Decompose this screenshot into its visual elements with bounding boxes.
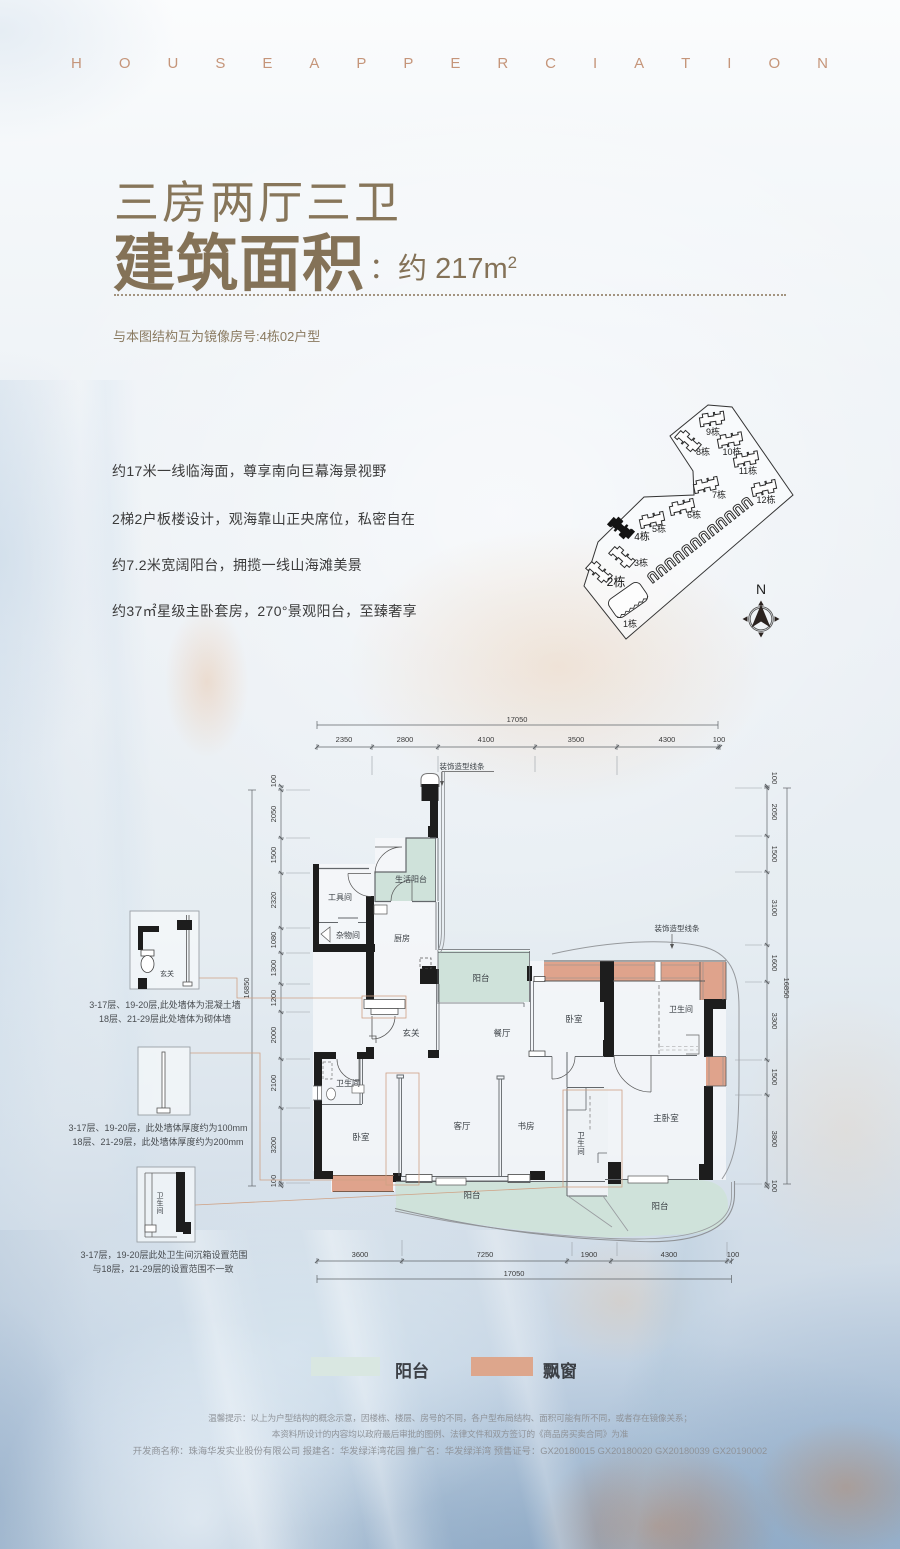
svg-text:2320: 2320 [269,892,278,909]
svg-text:3-17层、19-20层，此处墙体厚度约为100mm: 3-17层、19-20层，此处墙体厚度约为100mm [68,1122,247,1133]
svg-text:100: 100 [269,775,278,788]
svg-text:卫生间: 卫生间 [669,1004,693,1014]
svg-text:1500: 1500 [770,1069,779,1086]
svg-text:杂物间: 杂物间 [336,930,360,940]
svg-text:1600: 1600 [770,955,779,972]
svg-text:与18层，21-29层的设置范围不一致: 与18层，21-29层的设置范围不一致 [92,1263,233,1274]
svg-text:N: N [756,581,766,597]
svg-text:3200: 3200 [269,1137,278,1154]
svg-text:100: 100 [770,1180,779,1193]
svg-text:3-17层，19-20层此处卫生间沉箱设置范围: 3-17层，19-20层此处卫生间沉箱设置范围 [80,1249,247,1260]
svg-text:5栋: 5栋 [652,523,666,534]
svg-text:阳台: 阳台 [463,1190,480,1200]
svg-text:17050: 17050 [504,1269,525,1278]
svg-text:1900: 1900 [581,1250,598,1259]
svg-text:17050: 17050 [507,715,528,724]
svg-text:3300: 3300 [770,1013,779,1030]
svg-text:客厅: 客厅 [453,1121,471,1131]
svg-text:1栋: 1栋 [623,618,637,629]
svg-text:2050: 2050 [770,804,779,821]
svg-text:4300: 4300 [659,735,676,744]
svg-text:3栋: 3栋 [634,557,648,568]
svg-text:100: 100 [713,735,726,744]
svg-text:阳台: 阳台 [651,1201,668,1211]
svg-text:玄关: 玄关 [160,969,174,978]
svg-text:1500: 1500 [770,846,779,863]
svg-text:餐厅: 餐厅 [493,1028,511,1038]
svg-text:9栋: 9栋 [706,426,720,437]
svg-text:2000: 2000 [269,1027,278,1044]
svg-text:8栋: 8栋 [696,446,710,457]
svg-text:4栋: 4栋 [634,530,650,543]
svg-text:1500: 1500 [269,847,278,864]
svg-text:卧室: 卧室 [352,1132,370,1142]
svg-text:18层、21-29层此处墙体为砌体墙: 18层、21-29层此处墙体为砌体墙 [99,1013,231,1024]
svg-text:书房: 书房 [517,1121,534,1131]
svg-text:16850: 16850 [242,978,251,999]
svg-text:3800: 3800 [770,1131,779,1148]
svg-text:4300: 4300 [661,1250,678,1259]
svg-text:卧室: 卧室 [565,1014,583,1024]
svg-text:2350: 2350 [336,735,353,744]
svg-text:卫生间: 卫生间 [336,1078,360,1088]
svg-text:卫生间: 卫生间 [157,1192,164,1215]
svg-text:生活阳台: 生活阳台 [395,874,427,884]
svg-text:3500: 3500 [568,735,585,744]
svg-text:100: 100 [770,772,779,785]
svg-text:阳台: 阳台 [472,973,489,983]
svg-text:3600: 3600 [352,1250,369,1259]
svg-text:12栋: 12栋 [756,494,775,505]
svg-text:工具间: 工具间 [328,893,352,902]
svg-text:1300: 1300 [269,960,278,977]
svg-text:玄关: 玄关 [402,1028,420,1038]
svg-text:16850: 16850 [782,978,791,999]
svg-text:18层、21-29层，此处墙体厚度约为200mm: 18层、21-29层，此处墙体厚度约为200mm [72,1136,243,1147]
svg-text:100: 100 [727,1250,740,1259]
svg-text:7栋: 7栋 [712,489,726,500]
svg-text:装饰造型线条: 装饰造型线条 [655,923,700,933]
svg-text:3100: 3100 [770,900,779,917]
svg-text:4100: 4100 [478,735,495,744]
svg-text:2800: 2800 [397,735,414,744]
svg-text:3-17层、19-20层,此处墙体为混凝土墙: 3-17层、19-20层,此处墙体为混凝土墙 [89,999,241,1010]
svg-text:装饰造型线条: 装饰造型线条 [440,761,485,771]
svg-text:主卧室: 主卧室 [653,1113,679,1123]
svg-text:厨房: 厨房 [394,933,410,943]
svg-text:2栋: 2栋 [607,574,626,589]
svg-text:2100: 2100 [269,1075,278,1092]
svg-text:6栋: 6栋 [687,509,701,520]
svg-text:100: 100 [269,1175,278,1188]
svg-text:卫生间: 卫生间 [577,1131,585,1156]
svg-text:7250: 7250 [477,1250,494,1259]
svg-text:1080: 1080 [269,932,278,949]
svg-text:11栋: 11栋 [739,465,757,476]
svg-text:2050: 2050 [269,806,278,823]
